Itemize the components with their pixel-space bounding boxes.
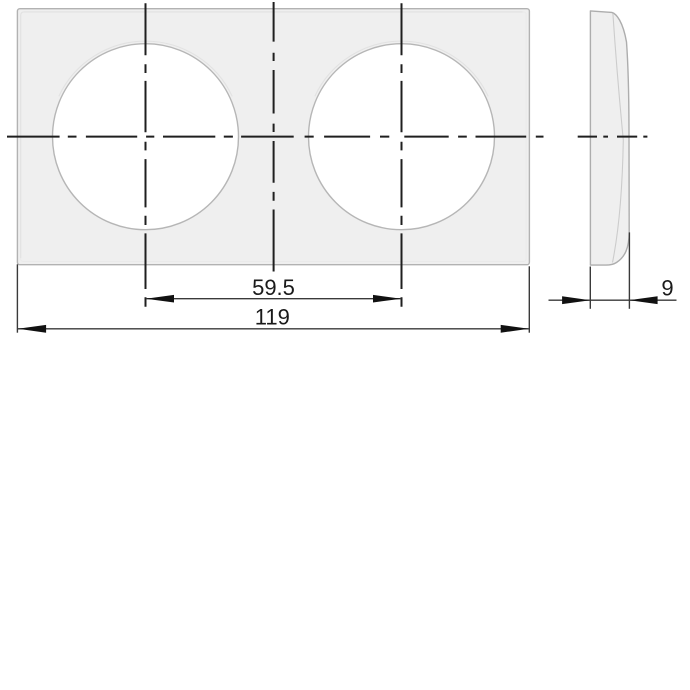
svg-text:9: 9 xyxy=(661,276,673,301)
svg-text:59.5: 59.5 xyxy=(252,275,295,300)
svg-text:119: 119 xyxy=(255,304,290,329)
